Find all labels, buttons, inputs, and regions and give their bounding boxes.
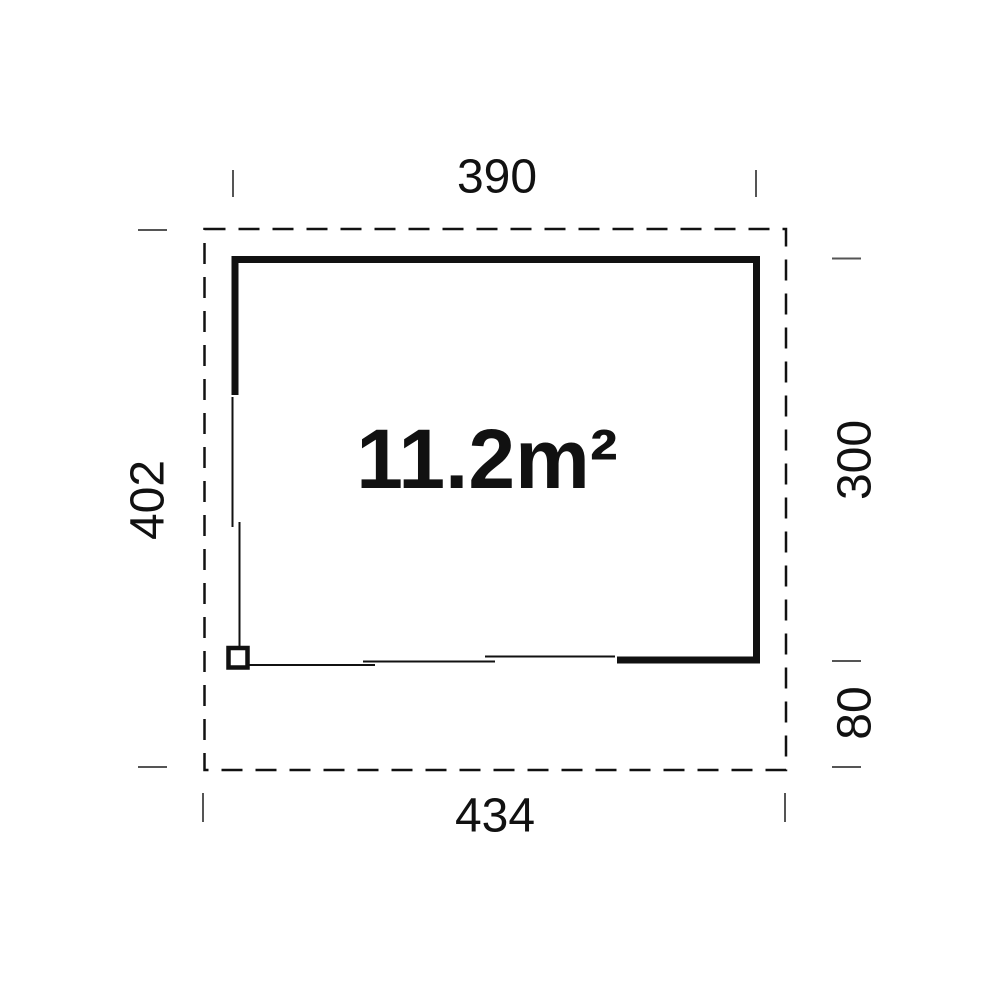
door-pivot-square <box>229 648 248 668</box>
floor-plan-diagram: 390 402 300 80 434 11.2m² <box>0 0 1000 1000</box>
dimension-label-bottom-width: 434 <box>455 790 535 843</box>
dimension-label-right-extension: 80 <box>829 686 882 739</box>
dimension-label-top-width: 390 <box>457 151 537 204</box>
floor-area-label: 11.2m² <box>356 412 618 506</box>
dimension-label-right-depth: 300 <box>829 420 882 500</box>
dimension-label-left-depth: 402 <box>122 460 175 540</box>
floor-plan-page: 390 402 300 80 434 11.2m² <box>0 0 1000 1000</box>
